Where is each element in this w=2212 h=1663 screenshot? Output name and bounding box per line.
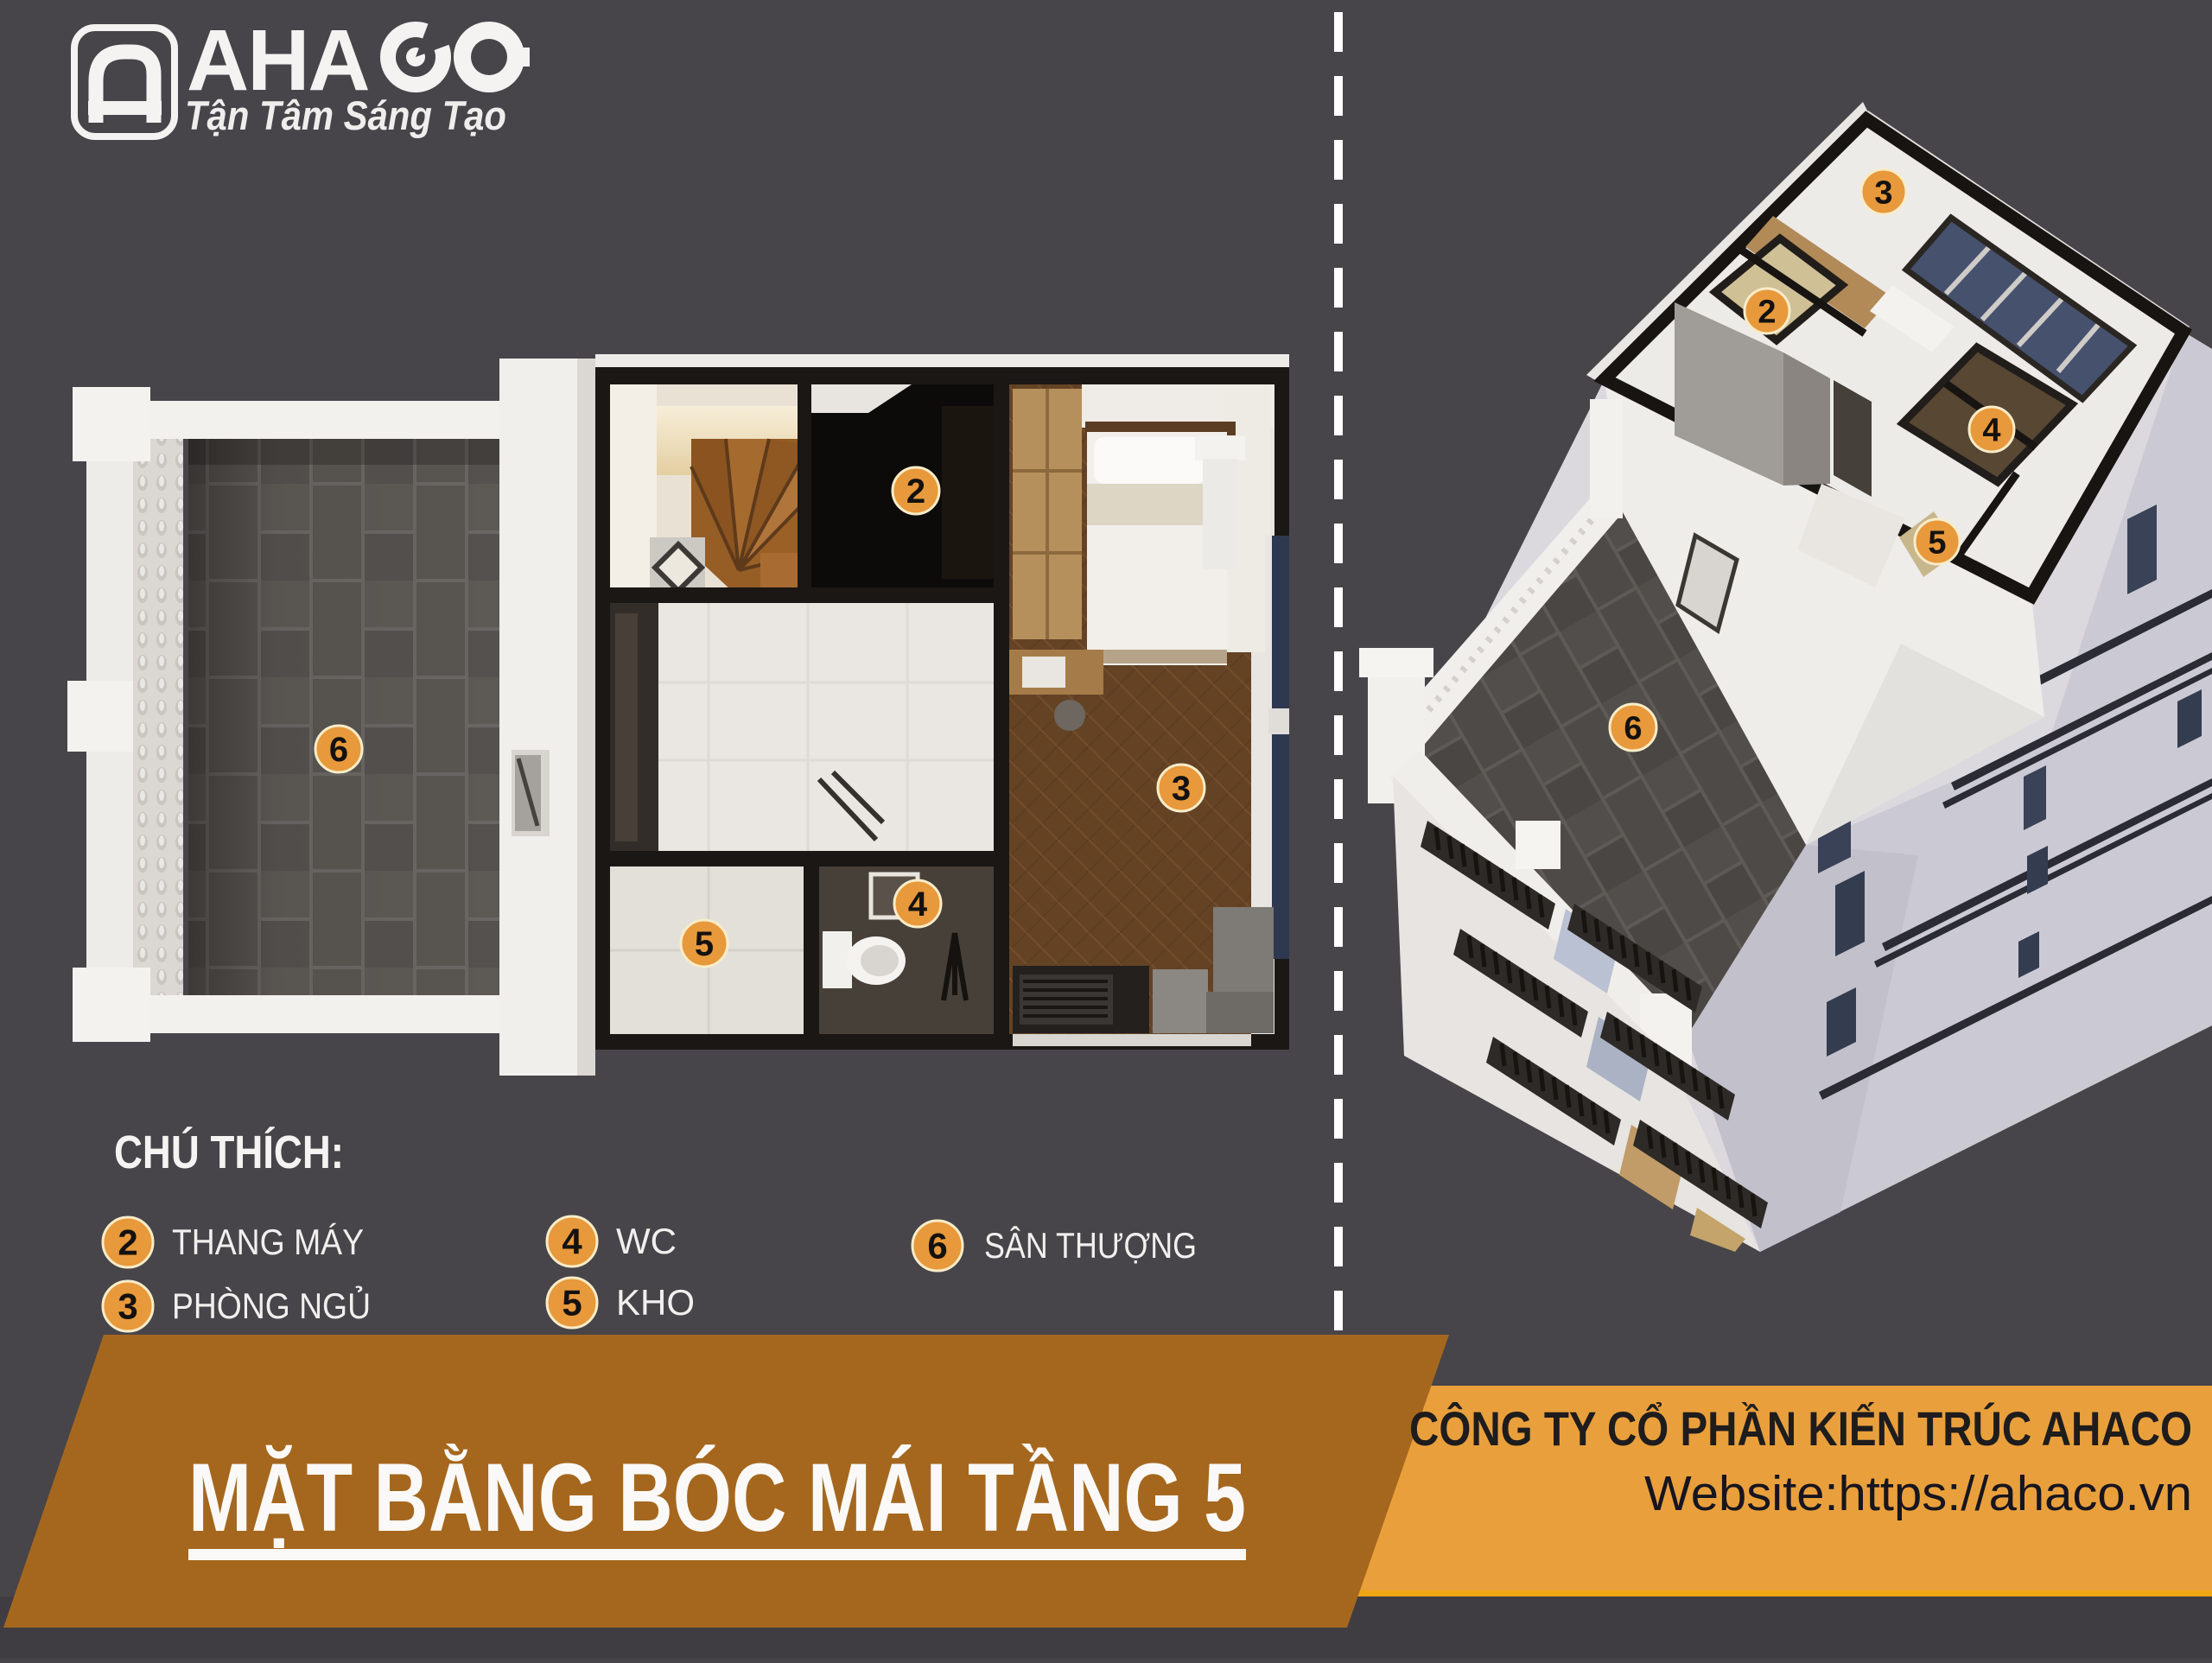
svg-text:4: 4 (562, 1222, 582, 1262)
svg-text:6: 6 (329, 731, 348, 769)
svg-text:5: 5 (1928, 524, 1946, 561)
svg-text:2: 2 (118, 1222, 137, 1263)
svg-text:SÂN THƯỢNG: SÂN THƯỢNG (984, 1225, 1197, 1266)
svg-text:Website:https://ahaco.vn: Website:https://ahaco.vn (1644, 1466, 2192, 1521)
svg-text:Tận Tâm Sáng Tạo: Tận Tâm Sáng Tạo (185, 92, 506, 138)
svg-text:3: 3 (118, 1286, 137, 1327)
svg-text:3: 3 (1874, 175, 1892, 211)
svg-text:5: 5 (562, 1283, 582, 1323)
svg-text:5: 5 (695, 925, 714, 963)
svg-text:MẶT BẰNG BÓC MÁI TẦNG 5: MẶT BẰNG BÓC MÁI TẦNG 5 (188, 1444, 1246, 1552)
svg-text:PHÒNG NGỦ: PHÒNG NGỦ (172, 1285, 371, 1326)
svg-text:WC: WC (616, 1221, 677, 1261)
svg-text:CÔNG TY CỔ PHẦN KIẾN TRÚC AHAC: CÔNG TY CỔ PHẦN KIẾN TRÚC AHACO (1409, 1401, 2192, 1456)
svg-text:3: 3 (1172, 770, 1191, 808)
svg-text:4: 4 (1982, 412, 2000, 448)
svg-text:CHÚ THÍCH:: CHÚ THÍCH: (114, 1127, 344, 1178)
svg-text:2: 2 (906, 473, 925, 511)
svg-text:2: 2 (1758, 294, 1776, 330)
svg-text:6: 6 (927, 1226, 947, 1266)
svg-text:6: 6 (1624, 710, 1642, 746)
svg-text:THANG MÁY: THANG MÁY (172, 1222, 364, 1262)
svg-text:KHO: KHO (616, 1282, 695, 1323)
svg-text:4: 4 (908, 885, 928, 924)
